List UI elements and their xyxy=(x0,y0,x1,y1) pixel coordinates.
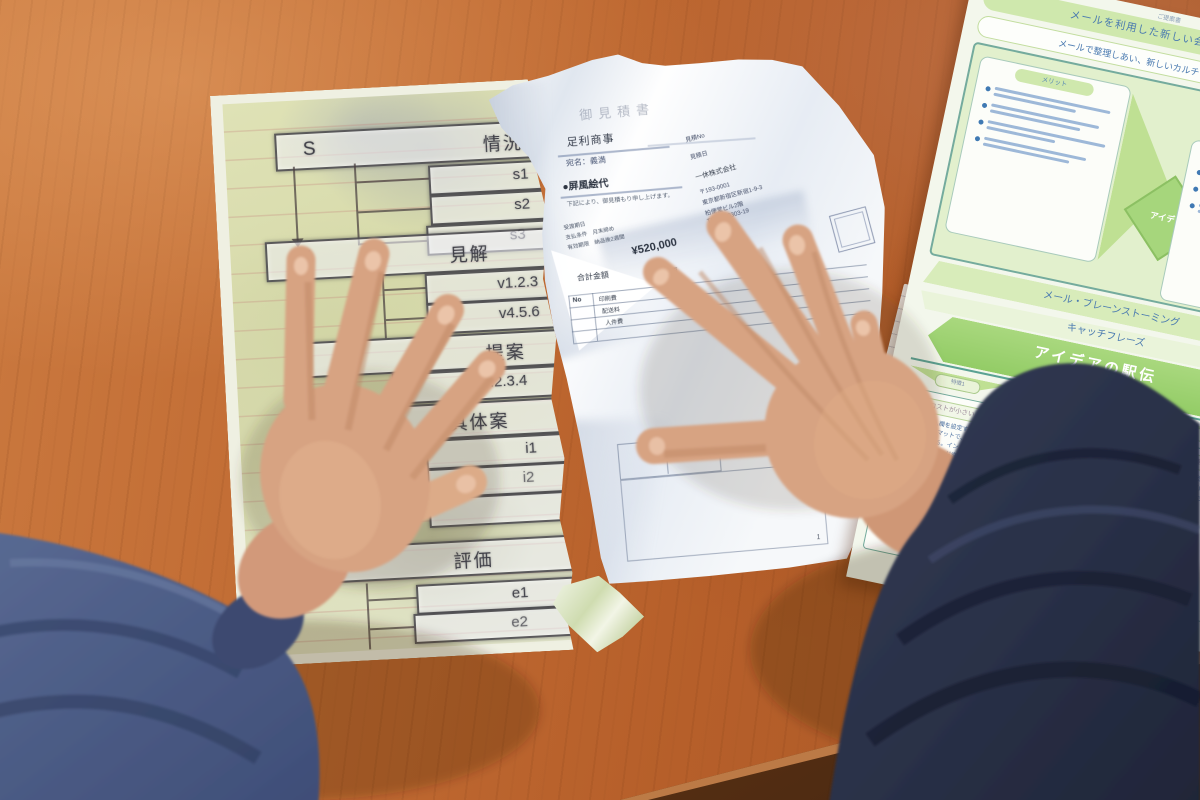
i1234-label: i1.2.3.4 xyxy=(394,369,586,396)
feature3-text: 従来必要だった根回しの作業がなくなってしまうので、事前に企画の概要を関係する人が… xyxy=(1140,462,1200,525)
remarks-grid xyxy=(617,423,867,563)
table-summary-header: 概要 xyxy=(663,266,678,277)
issuer-block: 見積No 見積日 一休株式会社 〒193-0001 東京都新宿区新宿1-9-3 … xyxy=(684,119,768,225)
bullet-dot xyxy=(978,119,984,125)
view-key: V xyxy=(297,248,311,271)
merit-bullets xyxy=(970,80,1118,180)
desk-scene: S 情況 s1 s2 s3 V 見解 v1. xyxy=(0,0,1200,800)
i2-label: i2 xyxy=(429,466,591,491)
stamp-box xyxy=(829,206,876,253)
client-company: 足利商事 xyxy=(566,130,615,150)
bullet-dot xyxy=(1193,186,1199,192)
view-label: 見解 xyxy=(449,240,490,268)
table-no-header: No xyxy=(572,296,581,304)
bullet-dot xyxy=(1196,170,1200,176)
table-row-2: 配送料 xyxy=(602,304,621,315)
bullet-dot xyxy=(975,136,981,142)
total-label: 合計金額 xyxy=(576,269,609,283)
evaluation-label: 評価 xyxy=(453,546,494,574)
total-value: ¥520,000 xyxy=(631,236,678,257)
estimate-table: No 印刷費 配送料 人件費 xyxy=(568,264,873,355)
page-number: 1 xyxy=(816,534,820,541)
bullet-dot xyxy=(1189,203,1195,209)
proposal-label: 提案 xyxy=(485,338,526,366)
worksheet-stained-area: S 情況 s1 s2 s3 V 見解 v1. xyxy=(222,87,578,656)
bullet-item xyxy=(1188,202,1200,242)
subject: ●屏風絵代 xyxy=(562,174,609,193)
bullet-dot xyxy=(985,86,991,92)
terms-block: 受渡期日 支払条件 月末締め 有効期限 納品後2週間 xyxy=(563,213,626,254)
estimate-title: 御見積書 xyxy=(578,98,655,124)
situation-key: S xyxy=(302,139,316,162)
worksheet-paper: S 情況 s1 s2 s3 V 見解 v1. xyxy=(210,78,585,667)
proposal-sheet: ご提案書 メールを利用した新しい会議のご提案 メールで整理しあい、新しいカルチャ… xyxy=(846,0,1200,660)
point-bullets xyxy=(1185,163,1200,246)
bullet-dot xyxy=(982,102,988,108)
table-row-1: 印刷費 xyxy=(598,293,617,304)
concrete-label: 具体案 xyxy=(449,407,510,436)
table-row-3: 人件費 xyxy=(605,316,624,327)
client-name: 宛名：義満 xyxy=(566,154,607,168)
i1-label: i1 xyxy=(428,437,590,462)
